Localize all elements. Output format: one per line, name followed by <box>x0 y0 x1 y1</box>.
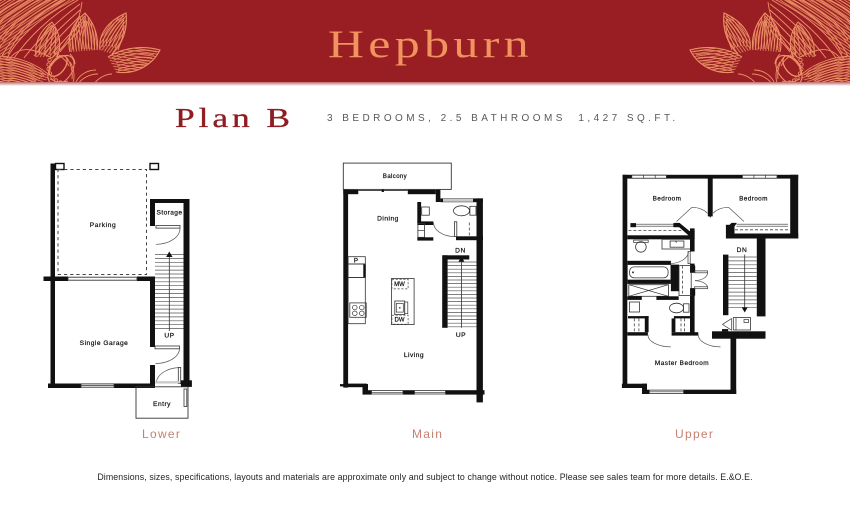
svg-text:DN: DN <box>737 247 748 254</box>
svg-text:Entry: Entry <box>153 401 171 408</box>
svg-text:Bedroom: Bedroom <box>653 196 682 203</box>
svg-text:DN: DN <box>455 248 466 255</box>
svg-text:Single Garage: Single Garage <box>80 340 129 347</box>
svg-text:Dining: Dining <box>377 216 399 223</box>
svg-text:Bedroom: Bedroom <box>739 196 768 203</box>
svg-text:UP: UP <box>164 333 174 340</box>
svg-text:UP: UP <box>456 332 466 339</box>
svg-text:Living: Living <box>404 352 424 359</box>
svg-text:Balcony: Balcony <box>383 174 407 180</box>
svg-text:DW: DW <box>395 318 405 324</box>
svg-text:Master Bedroom: Master Bedroom <box>655 360 709 367</box>
svg-text:Parking: Parking <box>90 222 117 229</box>
svg-text:MW: MW <box>394 282 405 288</box>
svg-text:Storage: Storage <box>157 210 183 217</box>
